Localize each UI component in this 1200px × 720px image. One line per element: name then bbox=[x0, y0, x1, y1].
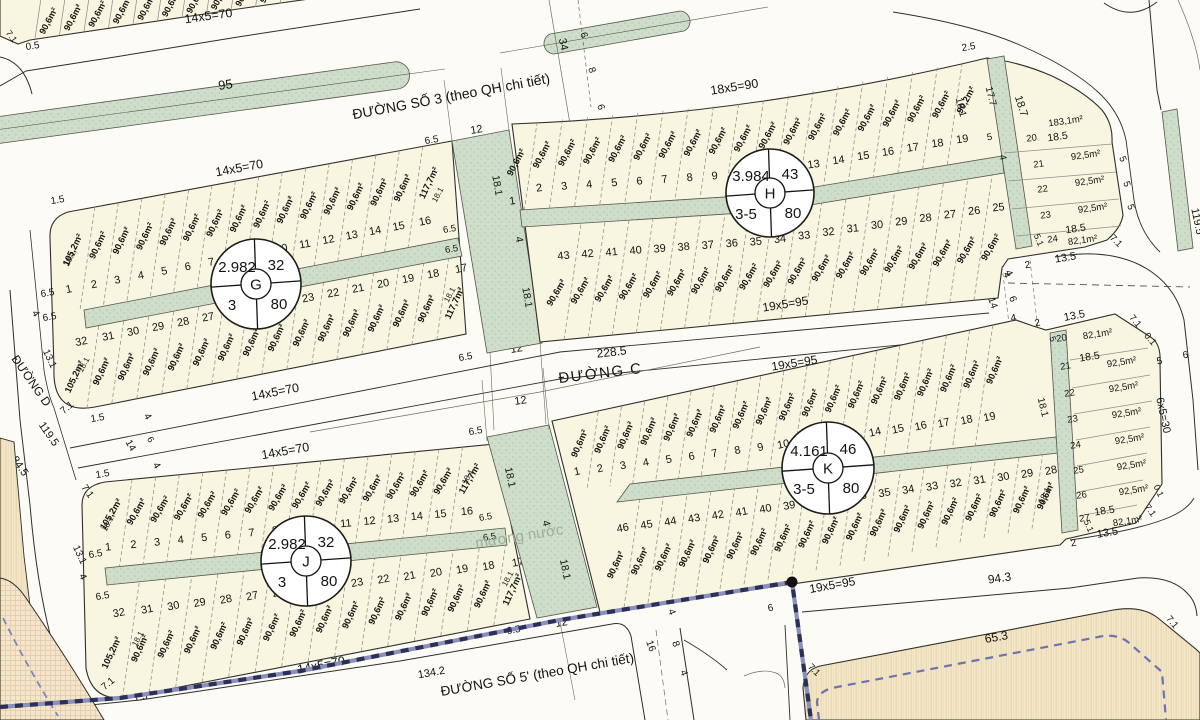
svg-text:46: 46 bbox=[616, 521, 630, 535]
svg-text:16: 16 bbox=[460, 505, 473, 518]
svg-text:6.5: 6.5 bbox=[88, 548, 104, 561]
svg-text:18: 18 bbox=[931, 137, 945, 151]
svg-text:28: 28 bbox=[176, 315, 190, 329]
svg-text:25: 25 bbox=[992, 201, 1005, 214]
svg-text:12: 12 bbox=[470, 123, 484, 137]
svg-text:40: 40 bbox=[758, 502, 772, 516]
svg-text:6.5: 6.5 bbox=[458, 351, 474, 364]
svg-text:28: 28 bbox=[219, 593, 233, 607]
svg-text:3-5: 3-5 bbox=[735, 206, 757, 223]
svg-text:G: G bbox=[250, 277, 262, 294]
svg-text:1.5: 1.5 bbox=[90, 412, 106, 425]
svg-text:11: 11 bbox=[340, 517, 353, 530]
svg-text:19: 19 bbox=[955, 133, 969, 147]
svg-text:39: 39 bbox=[653, 242, 666, 255]
svg-text:2: 2 bbox=[130, 539, 137, 552]
svg-text:17: 17 bbox=[906, 141, 920, 155]
svg-text:6.5: 6.5 bbox=[95, 590, 111, 603]
svg-text:27: 27 bbox=[201, 310, 215, 324]
svg-text:32: 32 bbox=[822, 226, 835, 239]
svg-text:39: 39 bbox=[782, 499, 796, 513]
svg-text:29: 29 bbox=[151, 320, 165, 334]
svg-text:21: 21 bbox=[403, 569, 417, 583]
svg-text:13: 13 bbox=[345, 229, 359, 243]
svg-text:95: 95 bbox=[217, 76, 233, 93]
svg-text:K: K bbox=[823, 461, 833, 478]
svg-text:28: 28 bbox=[919, 212, 932, 225]
svg-text:14: 14 bbox=[868, 425, 883, 439]
svg-text:42: 42 bbox=[711, 509, 725, 523]
svg-text:34: 34 bbox=[556, 37, 570, 51]
svg-text:14: 14 bbox=[832, 154, 846, 168]
svg-text:40: 40 bbox=[629, 244, 642, 257]
svg-text:30: 30 bbox=[996, 470, 1010, 484]
svg-text:26: 26 bbox=[968, 205, 981, 218]
svg-text:31: 31 bbox=[846, 222, 859, 235]
svg-text:13: 13 bbox=[807, 158, 821, 172]
svg-text:J: J bbox=[302, 554, 310, 571]
svg-text:22: 22 bbox=[326, 286, 340, 300]
svg-text:1: 1 bbox=[104, 541, 111, 554]
svg-text:36: 36 bbox=[725, 237, 738, 250]
svg-text:3-5: 3-5 bbox=[793, 481, 815, 498]
svg-text:1.5: 1.5 bbox=[50, 194, 66, 207]
svg-text:16: 16 bbox=[418, 215, 432, 229]
svg-text:31: 31 bbox=[140, 603, 154, 617]
svg-text:2.5: 2.5 bbox=[961, 41, 977, 54]
svg-text:6: 6 bbox=[224, 529, 231, 542]
svg-text:16: 16 bbox=[914, 419, 929, 433]
svg-text:23: 23 bbox=[301, 291, 315, 305]
svg-text:7: 7 bbox=[248, 527, 255, 540]
svg-text:29: 29 bbox=[193, 596, 207, 610]
svg-text:35: 35 bbox=[749, 235, 762, 248]
svg-text:20: 20 bbox=[1026, 132, 1038, 144]
svg-text:30: 30 bbox=[166, 599, 180, 613]
svg-text:27: 27 bbox=[245, 589, 259, 603]
svg-text:6.5: 6.5 bbox=[478, 511, 493, 524]
svg-text:46: 46 bbox=[840, 441, 857, 458]
svg-text:6.5: 6.5 bbox=[442, 223, 457, 236]
svg-text:23: 23 bbox=[1040, 209, 1052, 221]
svg-text:17: 17 bbox=[454, 262, 468, 276]
svg-text:16: 16 bbox=[881, 145, 895, 159]
svg-text:20: 20 bbox=[429, 566, 443, 580]
svg-text:21: 21 bbox=[351, 282, 365, 296]
svg-text:6.5: 6.5 bbox=[424, 134, 440, 147]
svg-text:38: 38 bbox=[677, 241, 690, 254]
svg-text:80: 80 bbox=[271, 296, 288, 313]
svg-text:33: 33 bbox=[925, 480, 939, 494]
svg-text:6.5: 6.5 bbox=[42, 311, 58, 324]
svg-text:43: 43 bbox=[782, 166, 799, 183]
svg-text:34: 34 bbox=[901, 483, 915, 497]
svg-text:35: 35 bbox=[877, 486, 891, 500]
svg-text:6.5: 6.5 bbox=[444, 243, 459, 256]
svg-text:32: 32 bbox=[949, 477, 963, 491]
svg-text:5: 5 bbox=[201, 532, 208, 545]
svg-text:30: 30 bbox=[126, 325, 140, 339]
svg-text:32: 32 bbox=[112, 606, 126, 620]
svg-text:22: 22 bbox=[1064, 387, 1076, 400]
svg-text:12: 12 bbox=[363, 515, 376, 528]
svg-text:41: 41 bbox=[605, 246, 618, 259]
svg-text:H: H bbox=[765, 186, 776, 203]
svg-text:24: 24 bbox=[1070, 439, 1082, 452]
svg-text:30: 30 bbox=[870, 219, 883, 232]
svg-text:20: 20 bbox=[1056, 332, 1068, 345]
svg-text:18: 18 bbox=[426, 267, 440, 281]
svg-text:32: 32 bbox=[268, 257, 285, 274]
svg-text:43: 43 bbox=[557, 250, 570, 263]
svg-text:11: 11 bbox=[298, 238, 311, 252]
svg-text:32: 32 bbox=[318, 534, 335, 551]
svg-text:14: 14 bbox=[410, 510, 423, 523]
svg-text:29: 29 bbox=[895, 215, 908, 228]
svg-text:6.5: 6.5 bbox=[40, 287, 56, 300]
svg-text:3: 3 bbox=[278, 574, 286, 591]
svg-text:26: 26 bbox=[1076, 489, 1088, 502]
svg-text:28: 28 bbox=[1044, 464, 1058, 478]
svg-text:31: 31 bbox=[972, 473, 986, 487]
svg-text:42: 42 bbox=[581, 248, 594, 261]
svg-text:1.5: 1.5 bbox=[95, 468, 111, 481]
svg-text:32: 32 bbox=[74, 335, 88, 349]
svg-text:4.161: 4.161 bbox=[790, 443, 828, 460]
svg-text:80: 80 bbox=[843, 480, 860, 497]
svg-text:3: 3 bbox=[153, 536, 160, 549]
svg-text:19: 19 bbox=[401, 272, 415, 286]
svg-text:45: 45 bbox=[639, 518, 653, 532]
svg-text:19: 19 bbox=[982, 410, 997, 424]
svg-text:43: 43 bbox=[687, 512, 701, 526]
svg-text:15: 15 bbox=[392, 220, 406, 234]
svg-text:2.982: 2.982 bbox=[218, 259, 256, 276]
svg-text:12: 12 bbox=[321, 233, 335, 247]
svg-text:2.982: 2.982 bbox=[268, 536, 306, 553]
svg-text:21: 21 bbox=[1033, 158, 1045, 170]
svg-text:0.5: 0.5 bbox=[25, 40, 41, 53]
svg-text:33: 33 bbox=[798, 229, 811, 242]
svg-text:29: 29 bbox=[1020, 467, 1034, 481]
svg-text:23: 23 bbox=[350, 576, 364, 590]
svg-text:80: 80 bbox=[321, 573, 338, 590]
svg-text:22: 22 bbox=[1037, 183, 1049, 195]
svg-text:4: 4 bbox=[177, 534, 184, 547]
svg-text:20: 20 bbox=[376, 277, 390, 291]
svg-text:23: 23 bbox=[1067, 413, 1079, 426]
svg-text:27: 27 bbox=[943, 208, 956, 221]
svg-text:24: 24 bbox=[1047, 233, 1059, 245]
svg-text:18: 18 bbox=[959, 413, 974, 427]
svg-text:3: 3 bbox=[228, 297, 236, 314]
svg-text:15: 15 bbox=[434, 508, 447, 521]
svg-text:19: 19 bbox=[455, 563, 469, 577]
svg-text:25: 25 bbox=[1073, 464, 1085, 477]
svg-text:18: 18 bbox=[481, 559, 495, 573]
svg-text:3.984: 3.984 bbox=[732, 168, 770, 185]
svg-text:17: 17 bbox=[936, 416, 951, 430]
svg-text:41: 41 bbox=[735, 505, 749, 519]
svg-text:15: 15 bbox=[891, 422, 906, 436]
svg-text:14: 14 bbox=[368, 224, 382, 238]
svg-text:21: 21 bbox=[1060, 360, 1072, 373]
svg-text:6.5: 6.5 bbox=[468, 425, 484, 438]
svg-text:37: 37 bbox=[701, 239, 714, 252]
svg-text:80: 80 bbox=[785, 205, 802, 222]
svg-text:15: 15 bbox=[856, 150, 870, 164]
svg-text:44: 44 bbox=[663, 515, 677, 529]
svg-text:22: 22 bbox=[376, 573, 390, 587]
svg-text:31: 31 bbox=[101, 330, 115, 344]
svg-text:13: 13 bbox=[386, 513, 399, 526]
